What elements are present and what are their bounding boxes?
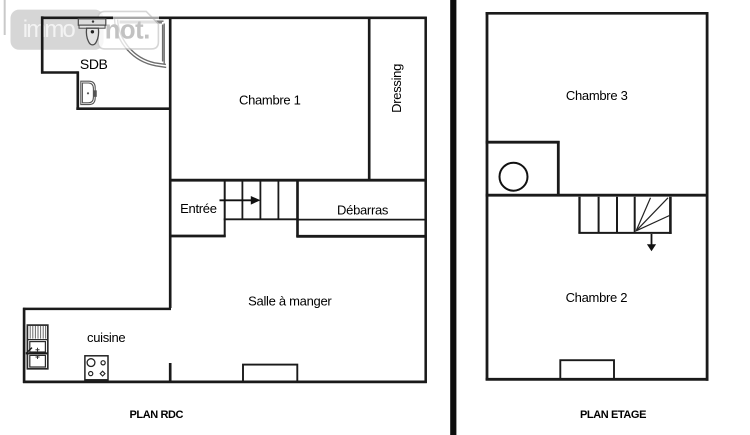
svg-text:Chambre 3: Chambre 3 [566, 88, 628, 103]
svg-text:Entrée: Entrée [180, 201, 217, 216]
svg-text:Salle à manger: Salle à manger [248, 294, 332, 309]
svg-text:Dressing: Dressing [389, 64, 404, 113]
svg-text:cuisine: cuisine [87, 330, 125, 345]
svg-text:PLAN RDC: PLAN RDC [129, 409, 183, 421]
svg-text:Débarras: Débarras [337, 202, 389, 217]
svg-text:immo: immo [23, 16, 76, 43]
svg-text:PLAN ETAGE: PLAN ETAGE [580, 409, 646, 421]
svg-text:Chambre 1: Chambre 1 [239, 92, 301, 107]
svg-text:not.: not. [105, 16, 150, 44]
svg-text:Chambre 2: Chambre 2 [566, 290, 628, 305]
svg-text:SDB: SDB [80, 56, 108, 72]
